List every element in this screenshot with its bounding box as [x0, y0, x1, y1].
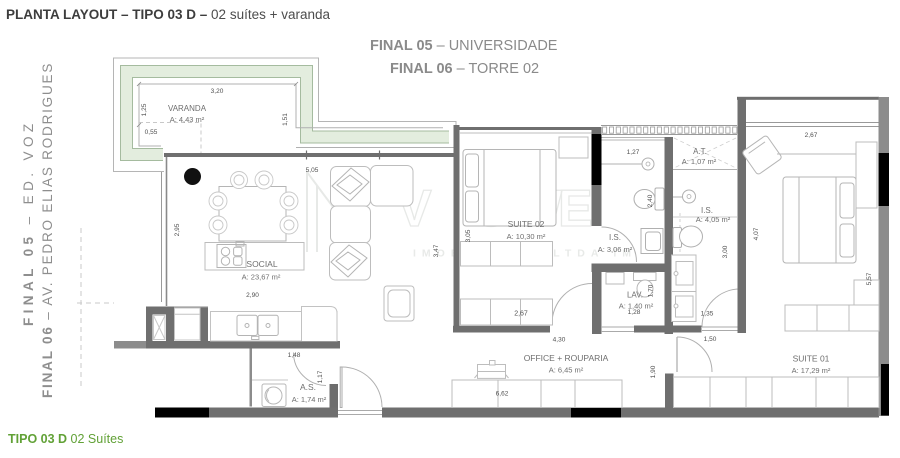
svg-text:OFFICE + ROUPARIA: OFFICE + ROUPARIA [524, 353, 609, 363]
svg-text:1,51: 1,51 [282, 113, 289, 126]
svg-text:1,28: 1,28 [628, 309, 641, 316]
svg-text:A: 4,05 m²: A: 4,05 m² [696, 215, 731, 224]
svg-text:FINAL 06 – AV. PEDRO ELIAS ROD: FINAL 06 – AV. PEDRO ELIAS RODRIGUES [40, 62, 55, 398]
svg-text:A: 6,45 m²: A: 6,45 m² [549, 366, 584, 375]
svg-text:A: 10,30 m²: A: 10,30 m² [507, 232, 546, 241]
svg-text:I.S.: I.S. [701, 206, 713, 215]
svg-text:SOCIAL: SOCIAL [246, 259, 277, 269]
svg-text:PLANTA LAYOUT – TIPO 03 D – 02: PLANTA LAYOUT – TIPO 03 D – 02 suítes + … [6, 7, 330, 22]
svg-text:3,47: 3,47 [433, 244, 440, 257]
svg-text:FINAL 06 – TORRE 02: FINAL 06 – TORRE 02 [390, 61, 539, 77]
svg-text:1,27: 1,27 [627, 149, 640, 156]
svg-text:FINAL 05 – UNIVERSIDADE: FINAL 05 – UNIVERSIDADE [370, 38, 558, 54]
svg-text:VARANDA: VARANDA [168, 104, 207, 113]
svg-text:3,05: 3,05 [465, 229, 472, 242]
svg-text:4,30: 4,30 [553, 337, 566, 344]
svg-text:A: 3,06 m²: A: 3,06 m² [598, 245, 633, 254]
svg-text:SUITE 02: SUITE 02 [508, 219, 545, 229]
svg-text:3,00: 3,00 [722, 245, 729, 258]
svg-text:5,57: 5,57 [866, 272, 873, 285]
svg-text:1,70: 1,70 [648, 284, 655, 297]
svg-text:4,07: 4,07 [753, 227, 760, 240]
svg-text:A: 23,67 m²: A: 23,67 m² [242, 273, 281, 282]
svg-text:E: E [558, 180, 593, 238]
svg-text:I.S.: I.S. [609, 233, 621, 242]
svg-text:1,90: 1,90 [650, 365, 657, 378]
svg-text:TIPO 03 D 02 Suítes: TIPO 03 D 02 Suítes [8, 432, 123, 446]
svg-text:2,40: 2,40 [647, 194, 654, 207]
svg-text:2,95: 2,95 [174, 223, 181, 236]
svg-text:A.S.: A.S. [300, 382, 316, 392]
svg-text:2,67: 2,67 [514, 310, 528, 317]
svg-text:1,35: 1,35 [701, 311, 714, 318]
svg-text:3,20: 3,20 [211, 88, 224, 95]
svg-text:FINAL 05 – ED. VOZ: FINAL 05 – ED. VOZ [21, 120, 36, 327]
svg-text:A: 1,74 m²: A: 1,74 m² [292, 395, 327, 404]
svg-text:A: 1,07 m²: A: 1,07 m² [682, 157, 717, 166]
svg-text:1,25: 1,25 [141, 103, 148, 116]
svg-text:2,67: 2,67 [805, 132, 818, 139]
svg-text:5,05: 5,05 [306, 167, 319, 174]
svg-text:1,48: 1,48 [288, 352, 301, 359]
svg-text:2,90: 2,90 [246, 292, 259, 299]
svg-text:0,55: 0,55 [145, 129, 158, 136]
svg-text:A: 17,29 m²: A: 17,29 m² [792, 366, 831, 375]
svg-text:A.T.: A.T. [693, 147, 707, 156]
svg-text:LAV.: LAV. [627, 291, 643, 300]
svg-text:SUITE 01: SUITE 01 [793, 354, 830, 364]
svg-text:6,62: 6,62 [496, 391, 509, 398]
svg-text:1,17: 1,17 [317, 370, 324, 383]
svg-text:1,50: 1,50 [704, 336, 717, 343]
svg-text:A: 4,43 m²: A: 4,43 m² [170, 115, 205, 124]
